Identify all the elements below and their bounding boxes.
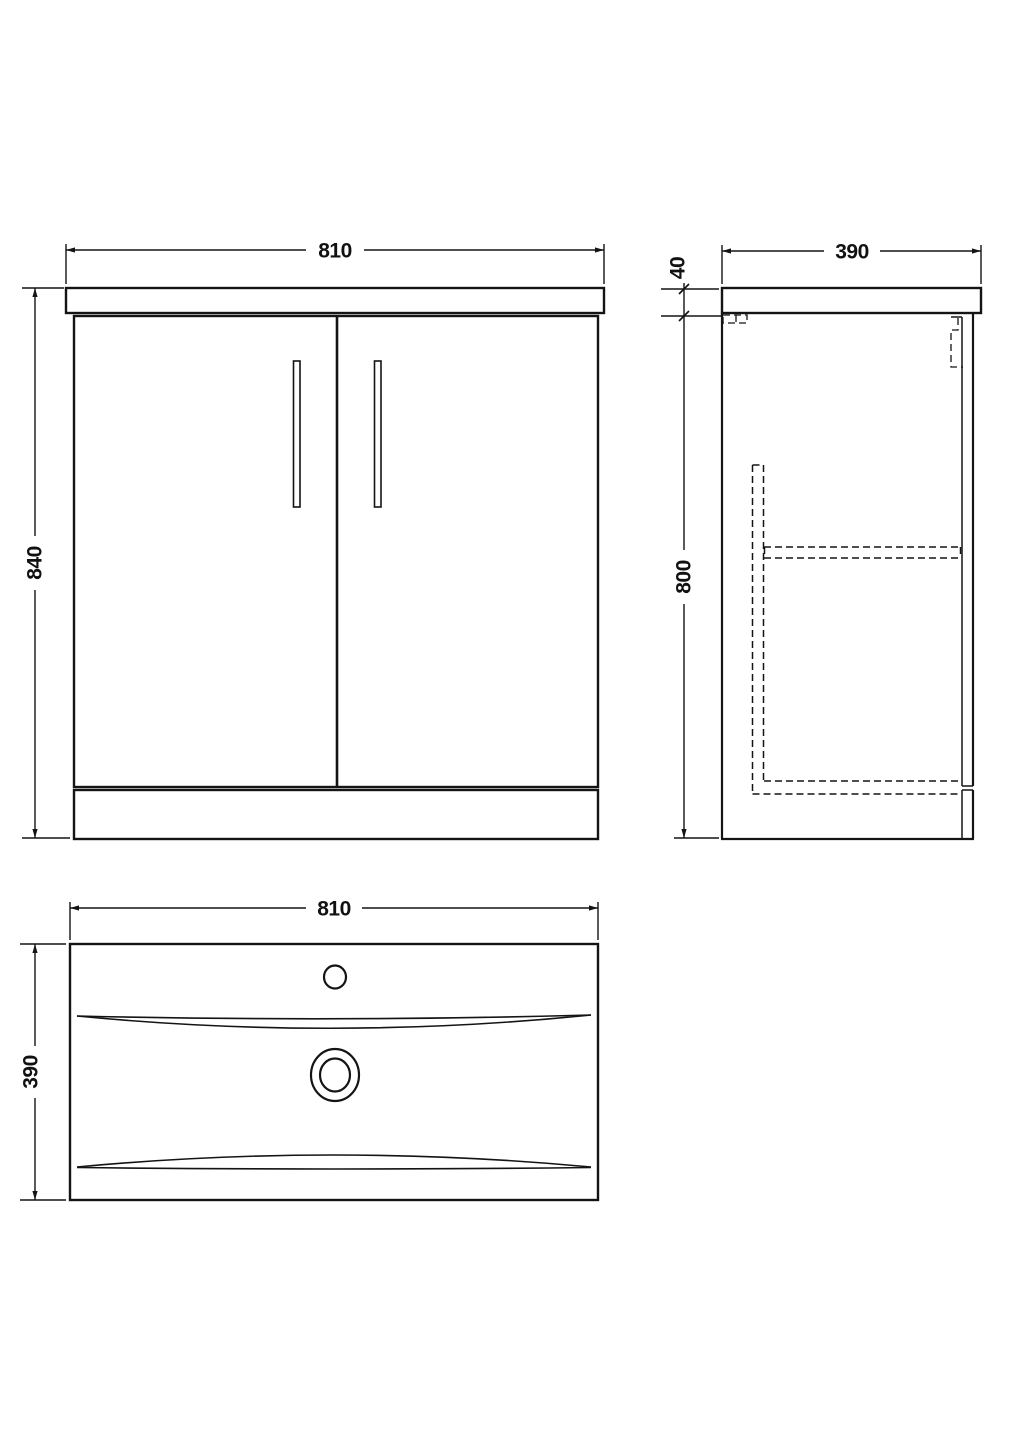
drawing-canvas: 810 840	[0, 0, 1024, 1449]
plan-width-dimension-label: 810	[317, 898, 351, 921]
side-bracket-hidden-detail	[951, 318, 963, 367]
side-worktop	[722, 288, 981, 313]
side-cabinet-height-label: 800	[673, 560, 696, 594]
side-height-dimensions: 40 800	[661, 257, 723, 838]
plan-bowl-front-edge	[77, 1155, 591, 1169]
plan-waste-drain	[311, 1049, 359, 1101]
plan-bowl-back-edge	[77, 1015, 591, 1028]
front-plinth	[74, 790, 598, 839]
plan-tap-hole	[324, 966, 346, 989]
side-depth-dimension: 390	[722, 241, 981, 285]
plan-view: 810 390	[20, 898, 599, 1201]
side-view: 390 40 800	[661, 241, 981, 840]
front-width-dimension-label: 810	[318, 240, 352, 263]
plan-depth-dimension: 390	[20, 944, 67, 1200]
front-width-dimension: 810	[66, 240, 604, 285]
side-worktop-thickness-label: 40	[667, 257, 690, 279]
front-worktop	[66, 288, 604, 313]
front-left-door-handle	[294, 361, 301, 507]
front-height-dimension: 840	[22, 288, 70, 838]
technical-drawing-page: 810 840	[0, 0, 1024, 1449]
side-hinge-hidden-detail	[723, 315, 747, 323]
side-depth-dimension-label: 390	[835, 241, 869, 264]
side-bottom-panel-hidden	[753, 781, 962, 794]
plan-width-dimension: 810	[70, 898, 598, 941]
front-right-door-handle	[375, 361, 382, 507]
side-back-service-panel-hidden	[753, 465, 764, 794]
side-shelf-hidden	[764, 547, 961, 558]
front-view: 810 840	[22, 240, 604, 840]
plan-depth-dimension-label: 390	[20, 1055, 43, 1089]
front-height-dimension-label: 840	[24, 546, 47, 580]
